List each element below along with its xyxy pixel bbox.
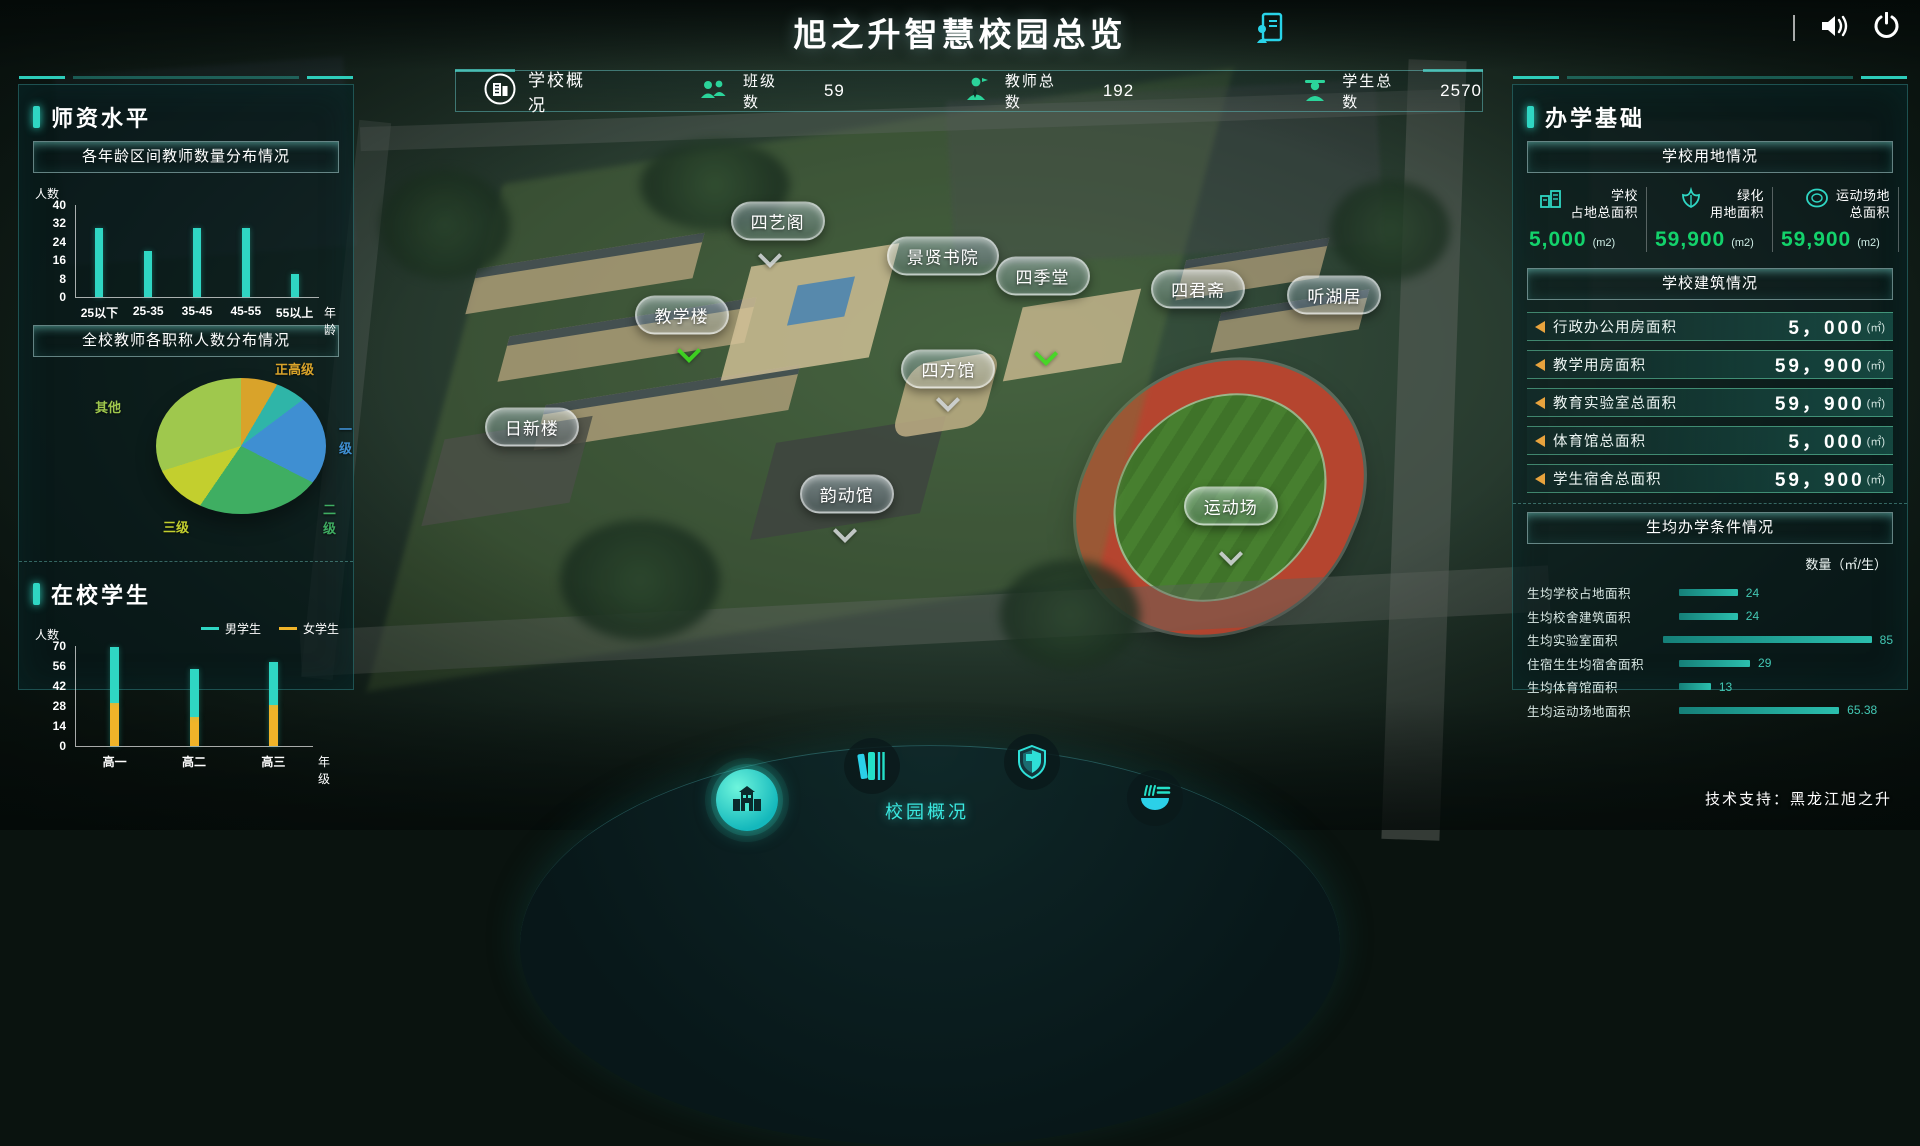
canteen-icon[interactable] bbox=[1127, 770, 1183, 826]
map-building-label[interactable]: 韵动馆 bbox=[800, 474, 894, 513]
map-building-label[interactable]: 四艺阁 bbox=[731, 201, 825, 240]
tech-support-credit: 技术支持：黑龙江旭之升 bbox=[1705, 788, 1892, 809]
map-building-label[interactable]: 四方馆 bbox=[901, 349, 995, 388]
map-building-label[interactable]: 教学楼 bbox=[635, 295, 729, 334]
map-gray-arrow-icon bbox=[936, 388, 960, 412]
map-building-label[interactable]: 听湖居 bbox=[1287, 276, 1381, 315]
library-icon[interactable] bbox=[844, 738, 900, 794]
map-label-layer: 四艺阁景贤书院四季堂四君斋听湖居教学楼四方馆日新楼韵动馆运动场 bbox=[0, 0, 1920, 830]
map-gray-arrow-icon bbox=[758, 244, 782, 268]
map-building-label[interactable]: 景贤书院 bbox=[887, 237, 999, 276]
map-building-label[interactable]: 运动场 bbox=[1184, 487, 1278, 526]
nav-active-label[interactable]: 校园概况 bbox=[852, 798, 1002, 824]
map-building-label[interactable]: 日新楼 bbox=[485, 408, 579, 447]
map-green-arrow-icon bbox=[1034, 342, 1058, 366]
map-gray-arrow-icon bbox=[1219, 542, 1243, 566]
map-green-arrow-icon bbox=[677, 339, 701, 363]
campus-overview-icon[interactable] bbox=[716, 769, 778, 831]
map-building-label[interactable]: 四季堂 bbox=[996, 257, 1090, 296]
security-icon[interactable] bbox=[1004, 734, 1060, 790]
map-building-label[interactable]: 四君斋 bbox=[1151, 269, 1245, 308]
map-gray-arrow-icon bbox=[833, 519, 857, 543]
